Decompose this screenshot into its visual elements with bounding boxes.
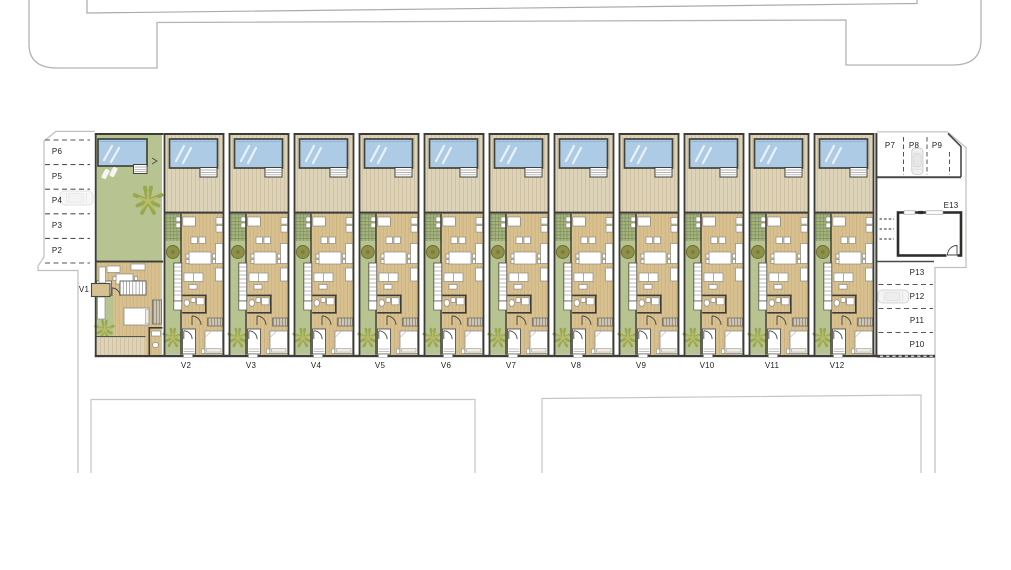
villa-unit-v3 <box>229 133 290 358</box>
villa-unit-v1 <box>92 133 164 357</box>
unit-label-v1: V1 <box>79 286 89 294</box>
unit-label-v3: V3 <box>246 362 256 370</box>
unit-label-v11: V11 <box>765 362 779 370</box>
parking-space-label-p4: P4 <box>52 197 62 205</box>
unit-label-v12: V12 <box>830 362 845 370</box>
villa-unit-v4 <box>294 133 355 358</box>
car-icon-p12 <box>878 290 909 303</box>
villa-unit-v5 <box>359 133 420 358</box>
villa-unit-v2 <box>164 133 225 358</box>
site-plan-drawing <box>0 0 1011 570</box>
parking-space-label-p8: P8 <box>909 142 919 150</box>
parking-space-label-p11: P11 <box>910 317 924 325</box>
parking-space-label-p6: P6 <box>52 148 62 156</box>
parking-space-label-p3: P3 <box>52 222 62 230</box>
car-icon-p8 <box>912 148 923 174</box>
top-road-outline <box>29 0 981 68</box>
villa-unit-v6 <box>424 133 485 358</box>
villa-unit-v10 <box>684 133 745 358</box>
parking-space-label-p13: P13 <box>910 269 925 277</box>
villa-unit-v9 <box>619 133 680 358</box>
townhouse-row <box>92 133 878 358</box>
parking-space-label-p12: P12 <box>910 293 925 301</box>
parking-space-label-p7: P7 <box>885 142 895 150</box>
unit-label-v7: V7 <box>506 362 516 370</box>
unit-label-v8: V8 <box>571 362 581 370</box>
villa-unit-v8 <box>554 133 615 358</box>
v1-entry-box <box>92 284 111 297</box>
storeroom-label-e13: E13 <box>944 202 959 210</box>
unit-label-v4: V4 <box>311 362 321 370</box>
storeroom-e13 <box>880 211 962 257</box>
unit-label-v6: V6 <box>441 362 451 370</box>
unit-label-v9: V9 <box>636 362 646 370</box>
bottom-parcel-outlines <box>91 395 921 473</box>
car-icon-p4 <box>60 191 93 205</box>
unit-label-v5: V5 <box>375 362 385 370</box>
unit-label-v2: V2 <box>181 362 191 370</box>
villa-unit-v11 <box>749 133 810 358</box>
parking-space-label-p9: P9 <box>932 142 942 150</box>
site-plan: V1 V2 V3 V4 V5 V6 V7 V8 V9 V10 V11 V12 P… <box>0 0 1011 570</box>
parking-space-label-p5: P5 <box>52 173 62 181</box>
villa-unit-v7 <box>489 133 550 358</box>
stairs-v1 <box>120 281 146 295</box>
parking-space-label-p10: P10 <box>910 341 925 349</box>
unit-label-v10: V10 <box>700 362 715 370</box>
villa-unit-v12 <box>814 133 875 358</box>
parking-right <box>877 262 935 358</box>
parking-space-label-p2: P2 <box>52 247 62 255</box>
